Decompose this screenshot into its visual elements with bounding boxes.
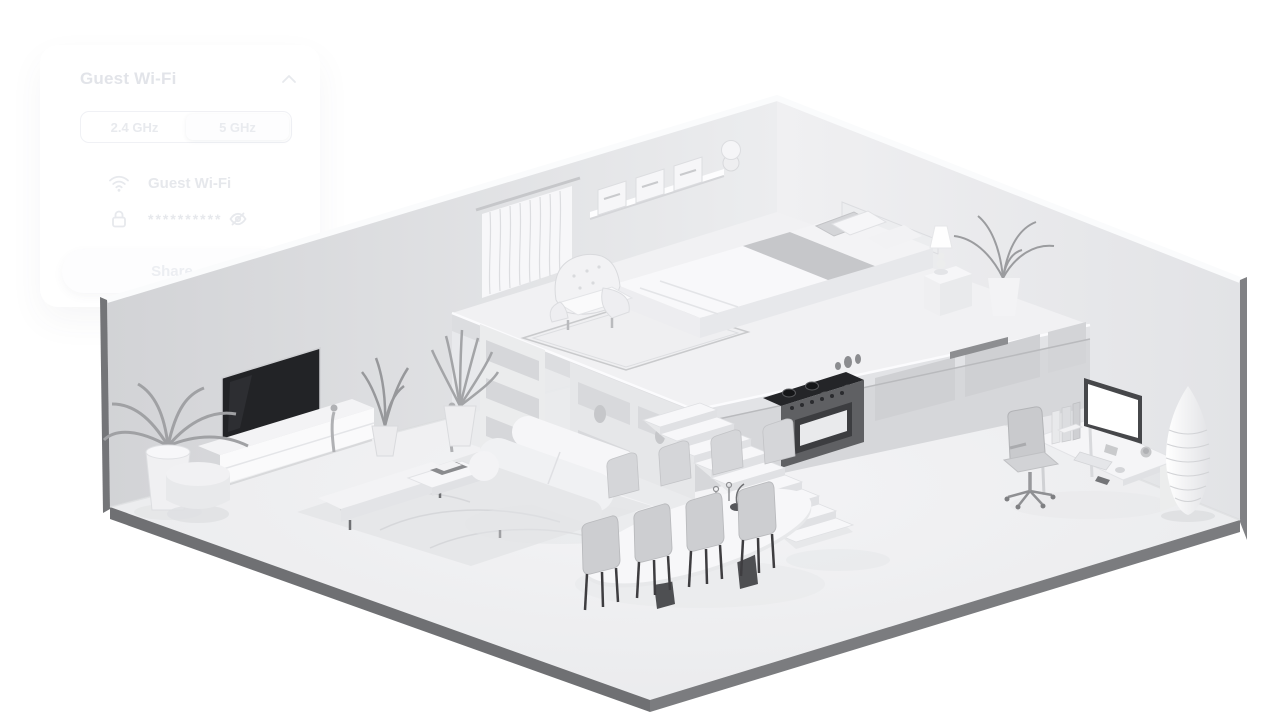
band-selector: 2.4 GHz 5 GHz — [80, 111, 292, 143]
sofa — [465, 432, 655, 544]
network-name: Guest Wi-Fi — [148, 175, 231, 192]
network-name-row: Guest Wi-Fi — [107, 171, 320, 195]
password-value: ********** — [148, 211, 226, 227]
home-office — [1004, 378, 1177, 519]
office-desk — [1033, 420, 1177, 512]
bed — [615, 202, 938, 338]
coffee-table — [408, 461, 486, 496]
share-button-label: Share — [151, 263, 193, 280]
chevron-up-icon[interactable] — [280, 72, 298, 86]
floor-plant-tall — [362, 358, 408, 456]
lock-icon — [107, 207, 131, 231]
bedroom-rug — [523, 300, 748, 370]
tv-console — [198, 399, 374, 486]
corner-palm-plant — [104, 384, 248, 520]
desk-accessories — [1074, 447, 1152, 486]
floor-vase — [1161, 386, 1215, 522]
desk-books — [1052, 402, 1082, 444]
guest-wifi-panel: Guest Wi-Fi 2.4 GHz 5 GHz Guest Wi-Fi — [40, 45, 320, 307]
daybed-bench — [318, 462, 455, 530]
mezzanine-platform — [452, 212, 1090, 428]
shelf-boxes — [598, 157, 702, 215]
living-room — [104, 330, 655, 566]
kitchen-stove — [763, 354, 864, 468]
under-mezzanine-shelving — [452, 324, 695, 520]
bedroom-window-curtains — [476, 178, 580, 298]
living-rug — [297, 452, 652, 566]
bedroom-armchair — [550, 254, 632, 330]
eye-off-icon[interactable] — [228, 209, 248, 229]
bedroom-nightstand-lamp — [924, 226, 972, 316]
pouf-ottoman — [166, 462, 230, 523]
dining-chairs-back-row — [607, 419, 795, 498]
band-2-4ghz-label: 2.4 GHz — [111, 120, 159, 135]
band-2-4ghz-tab[interactable]: 2.4 GHz — [83, 114, 186, 140]
table-items — [657, 483, 744, 531]
decor-statues — [331, 403, 456, 453]
kitchen-cabinets — [695, 322, 1090, 492]
dining-area — [575, 419, 825, 610]
panel-title: Guest Wi-Fi — [80, 69, 177, 89]
dining-chairs-front-row — [582, 482, 776, 610]
bed-pillows — [816, 211, 922, 249]
panel-header: Guest Wi-Fi — [40, 45, 320, 89]
desktop-monitor — [1084, 378, 1142, 456]
shelf-sphere-vase — [722, 141, 741, 172]
office-chair — [1004, 407, 1058, 510]
band-5ghz-tab[interactable]: 5 GHz — [186, 114, 289, 140]
bedroom-wall-shelf — [590, 141, 741, 220]
share-button[interactable]: Share — [62, 250, 282, 293]
wifi-icon — [107, 171, 131, 195]
bedroom-plant — [954, 216, 1054, 316]
counter-bottles — [835, 354, 861, 370]
band-5ghz-label: 5 GHz — [219, 120, 256, 135]
dining-table — [575, 469, 821, 609]
password-row: ********** — [107, 207, 320, 231]
floor-plant-bushy — [432, 330, 498, 446]
tv — [222, 348, 320, 442]
screenshot-root: Guest Wi-Fi 2.4 GHz 5 GHz Guest Wi-Fi — [0, 0, 1280, 720]
staircase — [643, 403, 890, 571]
room-floor — [110, 332, 1240, 712]
